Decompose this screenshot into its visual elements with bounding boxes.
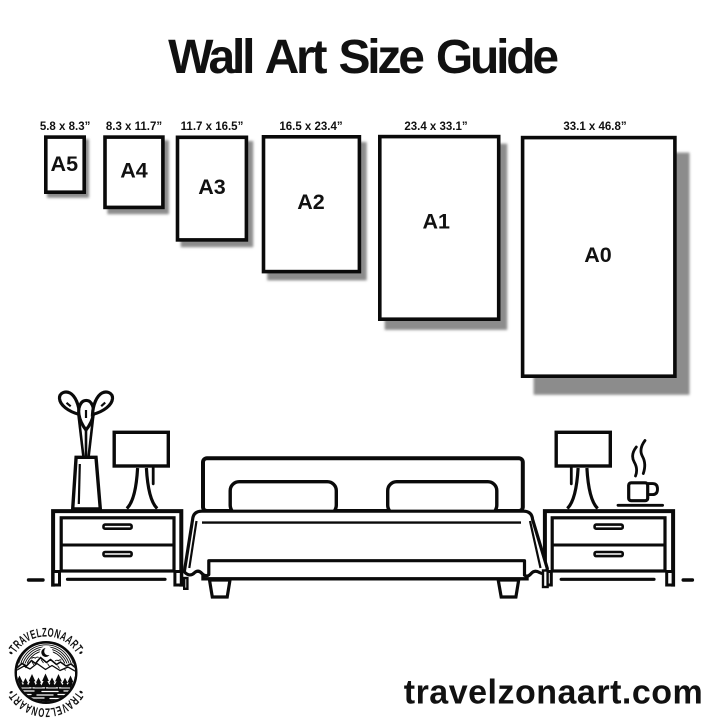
svg-text:8.3 x 11.7”: 8.3 x 11.7” bbox=[106, 121, 162, 133]
svg-text:A1: A1 bbox=[422, 209, 450, 233]
svg-text:Wall Art Size Guide: Wall Art Size Guide bbox=[168, 31, 558, 84]
svg-text:A4: A4 bbox=[120, 159, 148, 183]
svg-text:A5: A5 bbox=[51, 152, 79, 176]
svg-text:11.7 x 16.5”: 11.7 x 16.5” bbox=[181, 121, 244, 133]
svg-text:A0: A0 bbox=[584, 243, 612, 267]
svg-text:travelzonaart.com: travelzonaart.com bbox=[404, 674, 704, 712]
svg-text:16.5 x 23.4”: 16.5 x 23.4” bbox=[279, 121, 342, 133]
svg-text:A2: A2 bbox=[297, 190, 325, 214]
svg-text:A3: A3 bbox=[198, 175, 226, 199]
svg-text:23.4 x 33.1”: 23.4 x 33.1” bbox=[404, 121, 467, 133]
svg-text:5.8 x 8.3”: 5.8 x 8.3” bbox=[40, 121, 91, 133]
svg-text:33.1 x 46.8”: 33.1 x 46.8” bbox=[563, 121, 626, 133]
